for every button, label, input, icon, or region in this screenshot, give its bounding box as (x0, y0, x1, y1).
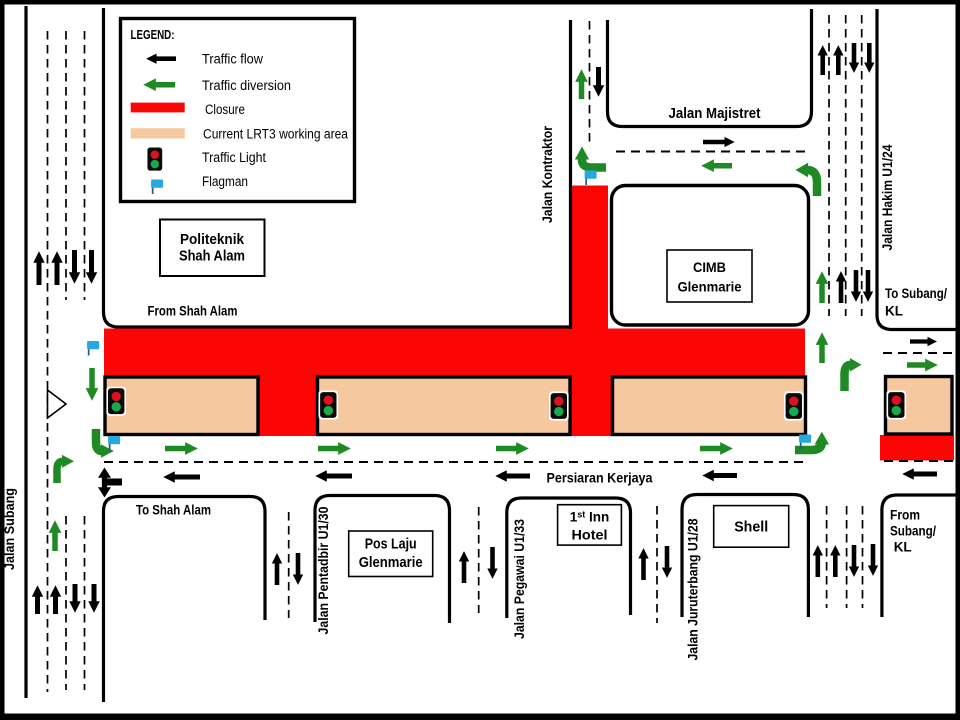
svg-text:Shell: Shell (734, 520, 768, 536)
svg-text:Persiaran Kerjaya: Persiaran Kerjaya (547, 470, 653, 486)
svg-text:From: From (890, 508, 920, 523)
svg-text:Jalan Subang: Jalan Subang (1, 488, 17, 570)
svg-text:CIMB: CIMB (693, 259, 726, 275)
svg-text:Shah Alam: Shah Alam (179, 248, 245, 265)
svg-text:Politeknik: Politeknik (180, 231, 245, 248)
svg-text:Glenmarie: Glenmarie (678, 279, 742, 295)
svg-text:Subang/: Subang/ (890, 524, 936, 539)
svg-text:Jalan Majistret: Jalan Majistret (669, 105, 761, 122)
svg-text:LEGEND:: LEGEND: (131, 27, 175, 42)
svg-text:Jalan Hakim U1/24: Jalan Hakim U1/24 (879, 144, 895, 250)
svg-text:1st Inn: 1st Inn (570, 510, 610, 525)
svg-text:From Shah Alam: From Shah Alam (148, 304, 238, 319)
svg-text:Current LRT3 working area: Current LRT3 working area (203, 127, 348, 142)
svg-text:Jalan Juruterbang U1/28: Jalan Juruterbang U1/28 (685, 518, 701, 660)
svg-text:Traffic flow: Traffic flow (202, 52, 263, 67)
svg-text:Hotel: Hotel (572, 528, 608, 543)
svg-text:Jalan Pegawai U1/33: Jalan Pegawai U1/33 (511, 519, 527, 639)
svg-text:Pos Laju: Pos Laju (365, 537, 417, 553)
svg-text:KL: KL (894, 540, 912, 555)
svg-text:Flagman: Flagman (202, 174, 248, 189)
svg-text:KL: KL (885, 304, 903, 319)
svg-text:To Subang/: To Subang/ (885, 286, 947, 301)
svg-text:Jalan Pentadbir U1/30: Jalan Pentadbir U1/30 (315, 506, 331, 634)
svg-text:Glenmarie: Glenmarie (359, 555, 423, 571)
svg-text:To Shah Alam: To Shah Alam (136, 503, 211, 518)
svg-text:Closure: Closure (205, 102, 245, 117)
svg-text:Traffic diversion: Traffic diversion (202, 78, 291, 93)
svg-text:Jalan Kontraktor: Jalan Kontraktor (539, 126, 555, 223)
svg-text:Traffic Light: Traffic Light (202, 150, 266, 165)
